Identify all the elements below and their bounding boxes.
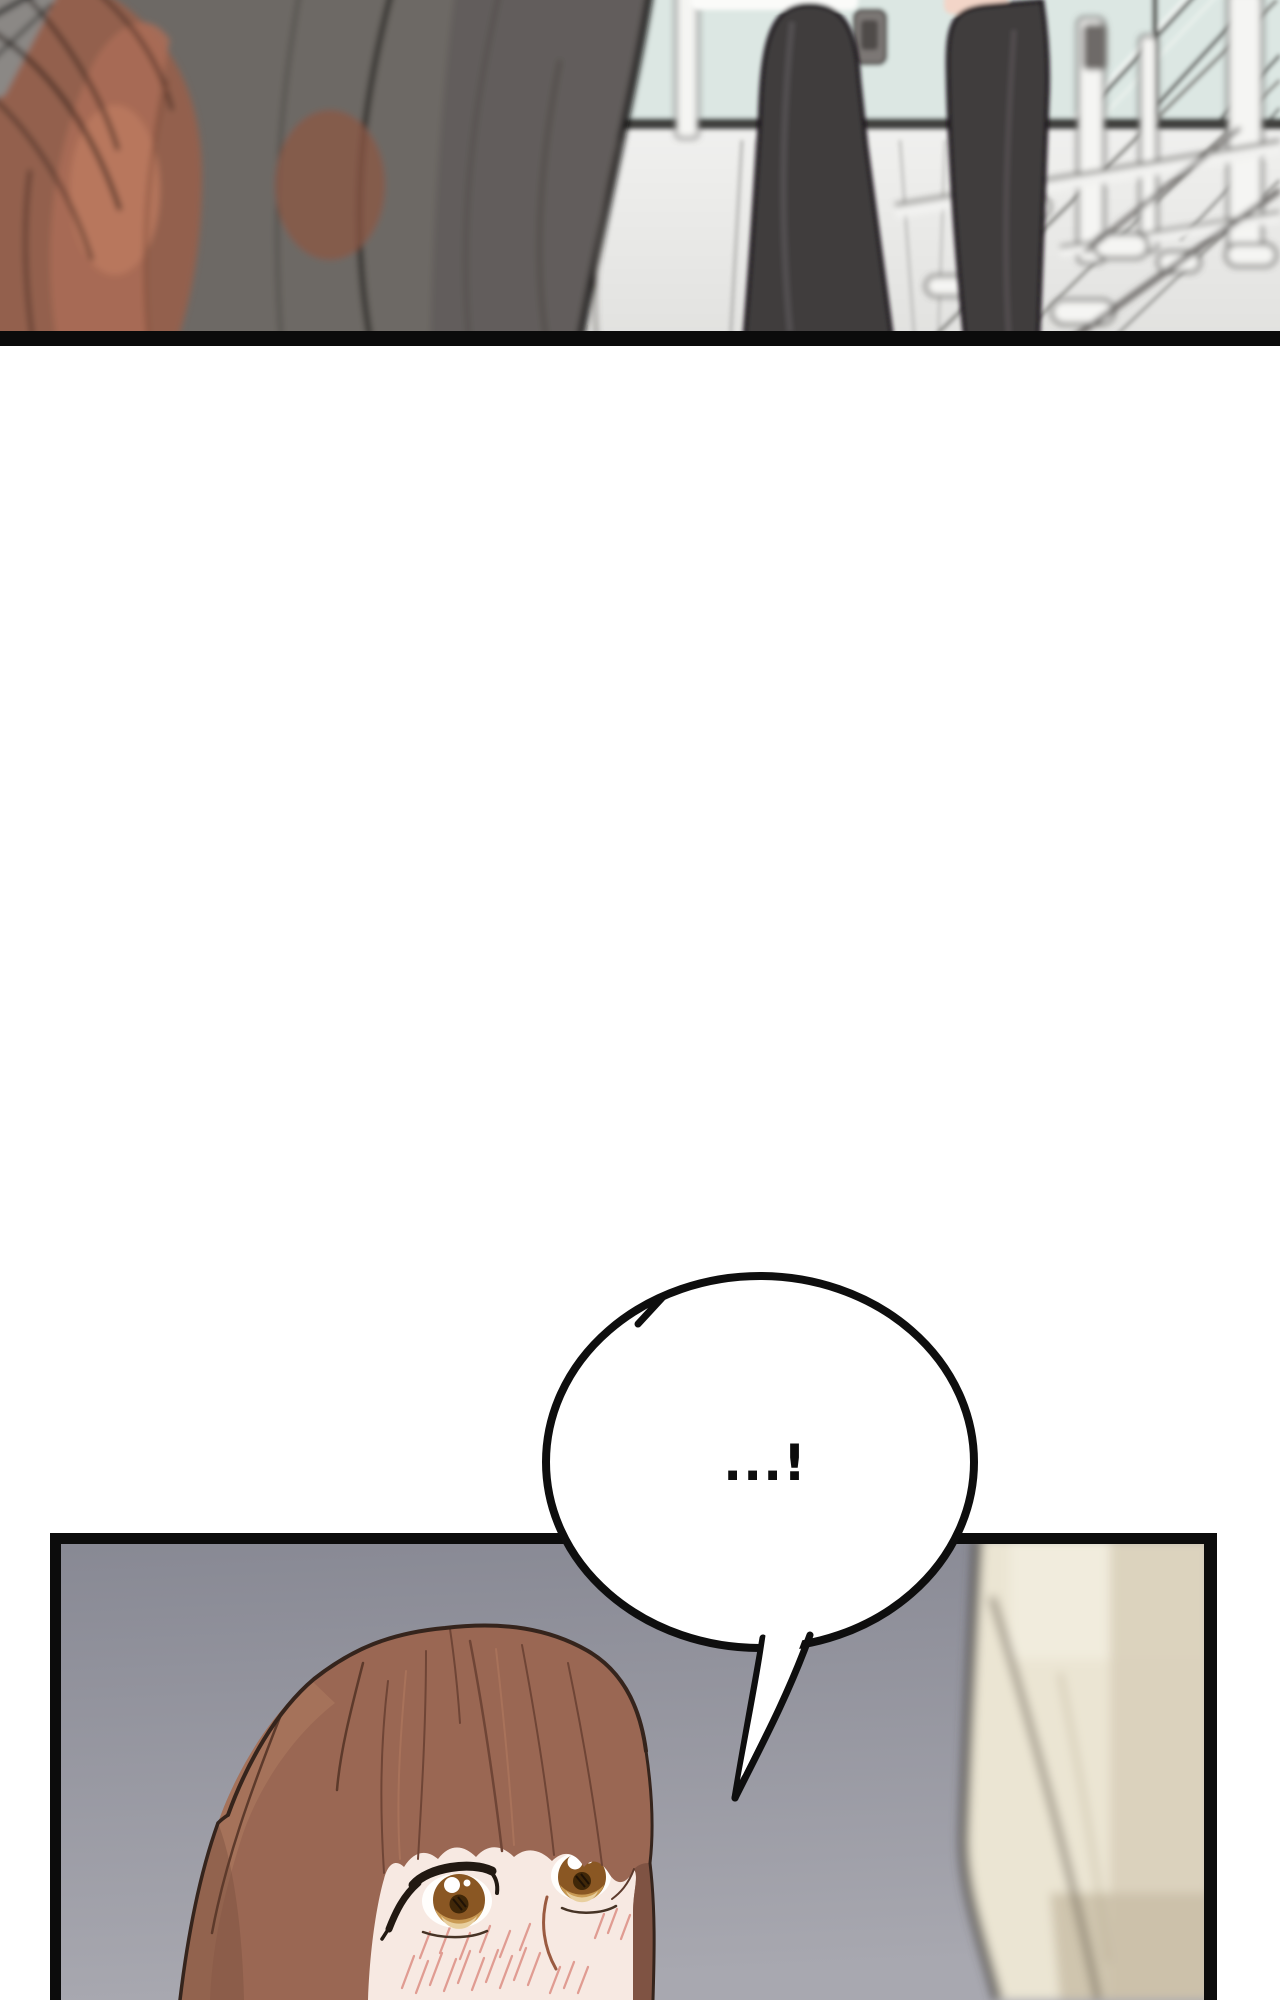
speech-bubble	[520, 1250, 1000, 1830]
top-panel-border	[0, 331, 1280, 346]
right-leg	[948, 1, 1048, 346]
panel-top	[0, 0, 1280, 346]
beige-figure	[964, 1539, 1211, 2000]
bubble-text: ...!	[700, 1432, 830, 1498]
door-lock	[854, 10, 886, 64]
comic-page: ...!	[0, 0, 1280, 2000]
top-panel-art	[0, 0, 1280, 346]
